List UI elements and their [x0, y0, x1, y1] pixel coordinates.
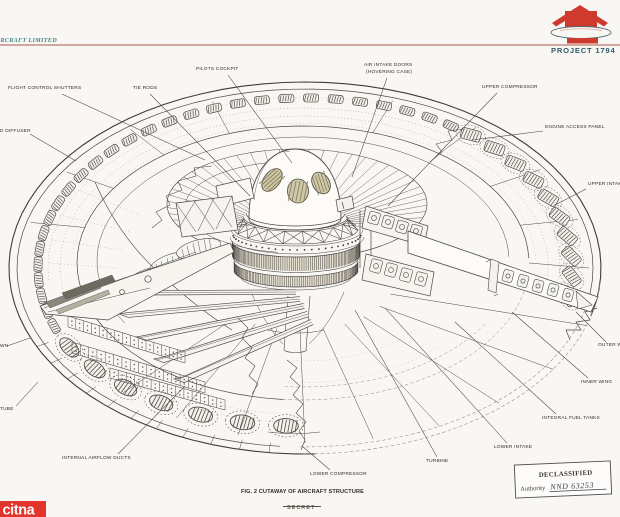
svg-text:(HOVERING CASE): (HOVERING CASE): [366, 69, 412, 75]
svg-text:INNER WING: INNER WING: [581, 379, 612, 385]
svg-text:LOWER INTAKE: LOWER INTAKE: [494, 444, 532, 450]
svg-text:PROJECT 1794: PROJECT 1794: [551, 46, 615, 55]
svg-text:AIR INTAKE DOORS: AIR INTAKE DOORS: [364, 62, 412, 68]
svg-text:INTERNAL AIRFLOW DUCTS: INTERNAL AIRFLOW DUCTS: [62, 455, 131, 461]
svg-text:Authority: Authority: [520, 485, 546, 493]
svg-text:ENGINE ACCESS PANEL: ENGINE ACCESS PANEL: [545, 124, 605, 130]
svg-text:citna: citna: [3, 503, 36, 517]
svg-text:UPPER INTAKE: UPPER INTAKE: [588, 181, 620, 187]
svg-text:FIG. 2 CUTAWAY OF AIRCRAFT STR: FIG. 2 CUTAWAY OF AIRCRAFT STRUCTURE: [241, 489, 364, 495]
svg-text:WN: WN: [0, 343, 9, 349]
svg-text:UPPER COMPRESSOR: UPPER COMPRESSOR: [482, 84, 538, 90]
svg-text:TIE RODS: TIE RODS: [133, 85, 157, 91]
svg-text:LOWER COMPRESSOR: LOWER COMPRESSOR: [310, 471, 367, 477]
svg-text:TURBINE: TURBINE: [426, 458, 448, 464]
svg-text:SECRET: SECRET: [287, 505, 315, 511]
svg-text:TUBE: TUBE: [0, 406, 14, 412]
svg-text:INTEGRAL FUEL TANKS: INTEGRAL FUEL TANKS: [542, 415, 600, 421]
svg-text:OUTER WING: OUTER WING: [598, 342, 620, 348]
svg-text:AVRO AIRCRAFT LIMITED: AVRO AIRCRAFT LIMITED: [0, 37, 57, 44]
svg-text:PILOTS COCKPIT: PILOTS COCKPIT: [196, 66, 239, 72]
svg-text:D DIFFUSER: D DIFFUSER: [0, 128, 31, 134]
svg-text:FLIGHT CONTROL SHUTTERS: FLIGHT CONTROL SHUTTERS: [8, 85, 81, 91]
